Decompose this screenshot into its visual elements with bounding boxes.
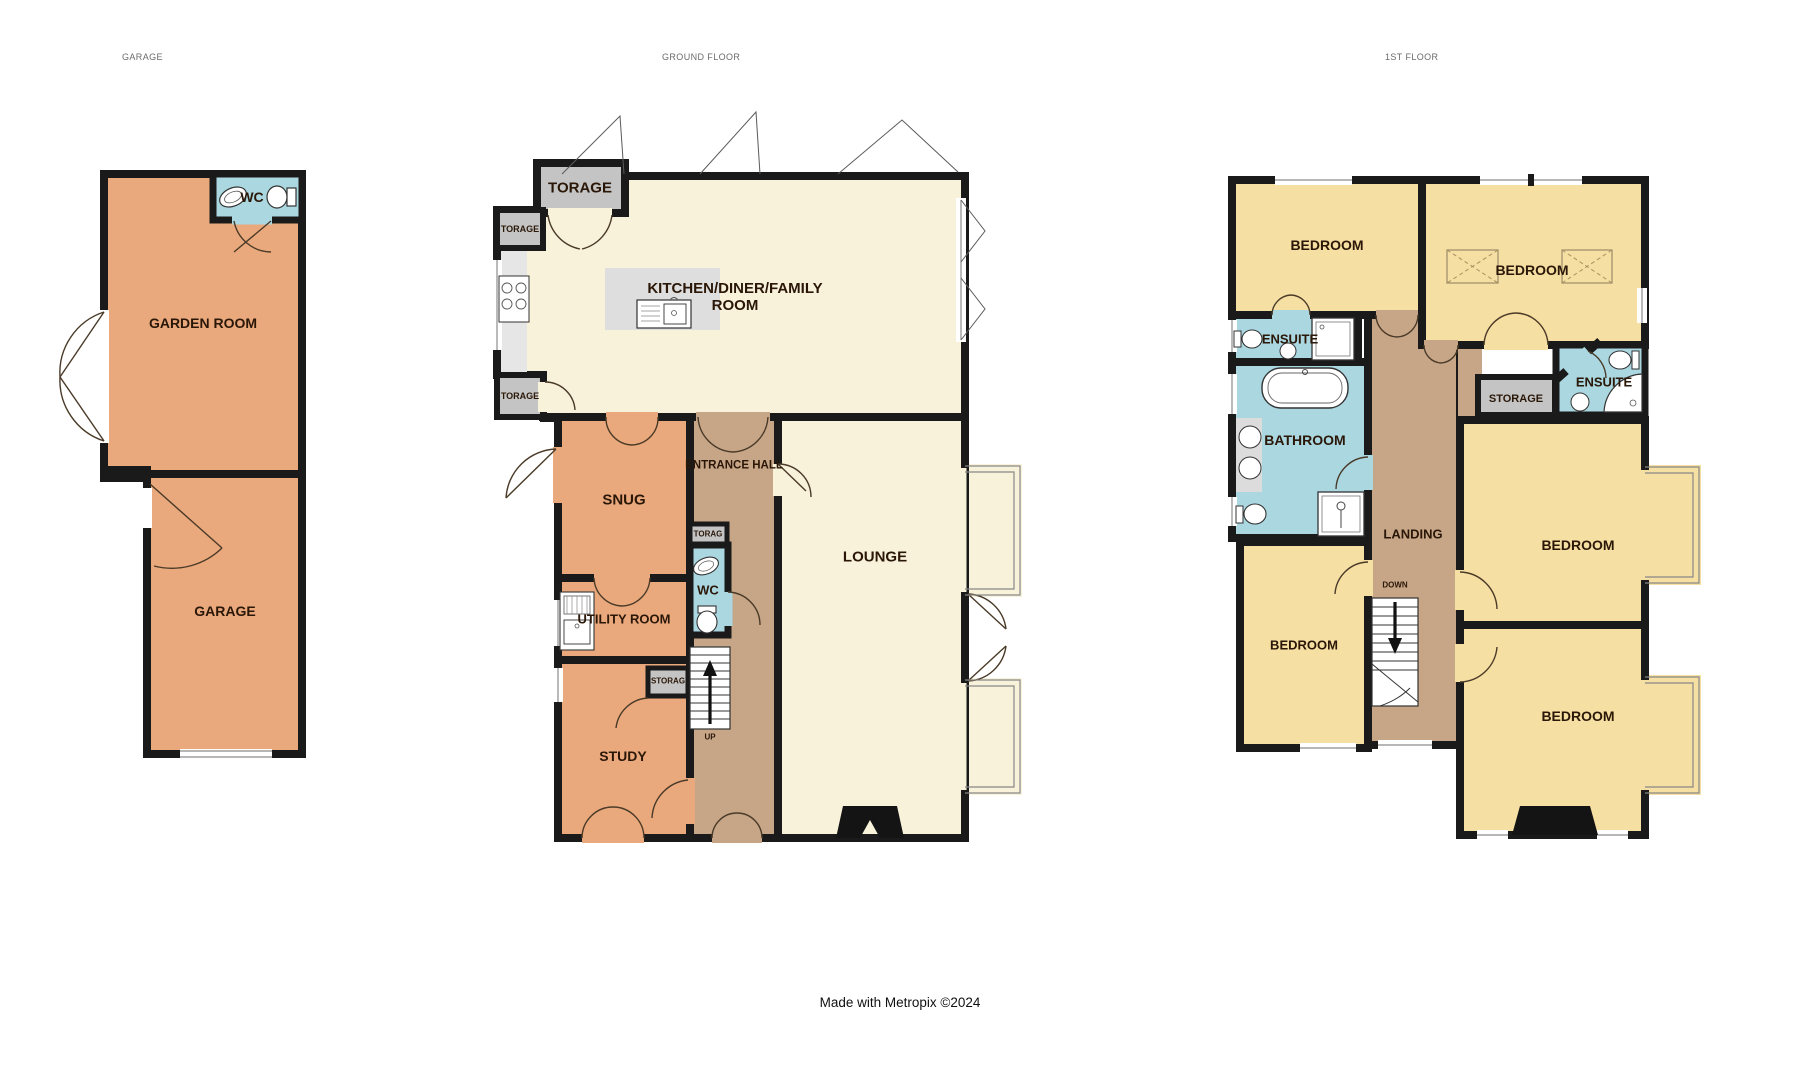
toilet-icon (1632, 351, 1639, 369)
room-label-bedroom-sw: BEDROOM (1270, 639, 1338, 654)
room-label-storage-first: STORAGE (1489, 393, 1543, 405)
toilet-icon (1234, 331, 1241, 347)
bedroom-e-floor (1460, 420, 1645, 625)
room-label-storage-lower: TORAGE (501, 391, 539, 401)
ground-floor-building (497, 112, 1022, 838)
stairs-up (690, 647, 730, 729)
room-label-bedroom-se: BEDROOM (1541, 709, 1614, 725)
room-label-entrance-hall: ENTRANCE HALL (685, 460, 783, 473)
wall-jog (100, 466, 151, 482)
room-label-storage-top: TORAGE (548, 181, 612, 198)
room-label-storage-stairs: STORAG (651, 678, 685, 687)
room-label-storage-upper: TORAGE (501, 224, 539, 234)
first-floor-building (1232, 174, 1701, 835)
garage-building (60, 174, 302, 757)
room-label-garden-room: GARDEN ROOM (149, 316, 257, 332)
section-title-ground: GROUND FLOOR (662, 52, 740, 62)
bedroom-se-floor (1460, 625, 1645, 835)
room-label-study: STUDY (599, 749, 646, 765)
room-label-bedroom-ne: BEDROOM (1495, 263, 1568, 279)
room-label-garage: GARAGE (194, 604, 255, 620)
room-label-bedroom-nw: BEDROOM (1290, 238, 1363, 254)
toilet-icon (1236, 506, 1243, 523)
room-label-lounge: LOUNGE (843, 550, 907, 567)
room-label-landing: LANDING (1383, 528, 1442, 543)
toilet-icon (287, 188, 296, 206)
room-label-kitchen: KITCHEN/DINER/FAMILY ROOM (623, 281, 848, 315)
section-title-first: 1ST FLOOR (1385, 52, 1438, 62)
section-title-garage: GARAGE (122, 52, 163, 62)
sink-icon (1571, 393, 1589, 411)
room-label-wc: WC (697, 584, 719, 599)
room-label-ensuite-w: ENSUITE (1262, 333, 1318, 348)
room-label-utility: UTILITY ROOM (578, 613, 671, 628)
fireplace-icon (1512, 806, 1598, 835)
room-label-bedroom-e: BEDROOM (1541, 538, 1614, 554)
floorplan-canvas: GARAGE GROUND FLOOR 1ST FLOOR GARDEN ROO… (0, 0, 1800, 1080)
shower-icon (1312, 318, 1354, 360)
metropix-credit: Made with Metropix ©2024 (820, 995, 981, 1010)
room-label-ensuite-e: ENSUITE (1576, 376, 1632, 391)
room-label-snug: SNUG (602, 493, 645, 510)
room-label-storage-hall: TORAG (694, 531, 723, 540)
hob-icon (499, 276, 529, 322)
room-label-bathroom: BATHROOM (1264, 433, 1345, 449)
room-label-garage-wc: WC (240, 190, 263, 206)
stairs-down (1372, 598, 1418, 706)
sink-icon (1239, 457, 1261, 479)
sink-icon (1239, 426, 1261, 448)
stairs-down-label: DOWN (1382, 582, 1407, 591)
stairs-up-label: UP (704, 734, 715, 743)
floorplan-drawing (0, 0, 1800, 1080)
